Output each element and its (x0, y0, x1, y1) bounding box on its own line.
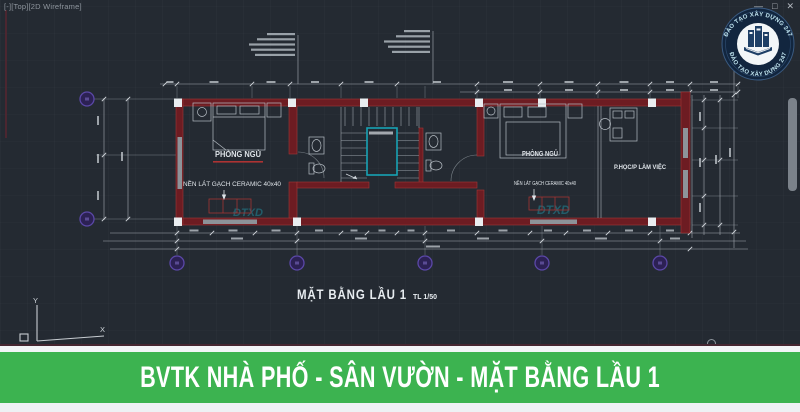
room-label-study: P.HỌC/P LÀM VIỆC (614, 162, 666, 171)
note-arrows (222, 189, 536, 201)
stair-void-label-smudge (369, 132, 393, 135)
grid-axis-bubbles (80, 92, 667, 270)
toilet-bowl (313, 164, 325, 173)
leader-note-text-blocks (249, 30, 430, 56)
floor-note-left: NỀN LÁT GẠCH CERAMIC 40x40 (183, 181, 282, 188)
watermarks: ĐTXD ĐTXD (233, 203, 570, 219)
lamp (487, 107, 495, 115)
bed-right (500, 104, 566, 158)
logo-svg: ĐÀO TẠO XÂY DỰNG 247 ĐÀO TẠO XÂY DỰNG 24… (719, 5, 797, 83)
door-swings (298, 152, 477, 181)
title-banner: BVTK NHÀ PHỐ - SÂN VƯỜN - MẶT BẰNG LẦU 1 (0, 352, 800, 403)
banner-title-text: BVTK NHÀ PHỐ - SÂN VƯỜN - MẶT BẰNG LẦU 1 (140, 361, 660, 395)
drawing-title: MẶT BẰNG LẦU 1 TL 1/50 (297, 287, 437, 302)
sink-basin (429, 136, 438, 148)
dimension-numbers-vertical (97, 112, 731, 212)
plan-title: MẶT BẰNG LẦU 1 (297, 287, 407, 302)
furniture (193, 103, 637, 174)
plan-scale: TL 1/50 (413, 292, 437, 301)
sink-basin (312, 140, 321, 152)
room-label-bedroom-right: PHÒNG NGỦ (522, 149, 558, 158)
stair-void (367, 128, 397, 175)
white-footer-strip (0, 403, 800, 412)
viewport-controls-label[interactable]: [-][Top][2D Wireframe] (4, 2, 82, 11)
logo-badge: ĐÀO TẠO XÂY DỰNG 247 ĐÀO TẠO XÂY DỰNG 24… (719, 5, 797, 88)
ucs-icon: Y X (8, 295, 118, 347)
dimension-lines (103, 31, 748, 249)
desk (610, 108, 637, 141)
ucs-x-label: X (100, 325, 105, 334)
bed-left (213, 103, 265, 150)
room-label-bedroom-left: PHÒNG NGỦ (215, 150, 261, 159)
toilet-bowl (430, 161, 442, 170)
ucs-y-label: Y (33, 296, 38, 305)
autocad-drawing-area[interactable]: [-][Top][2D Wireframe] — □ ✕ ĐÀO TẠO XÂY… (0, 0, 800, 412)
vertical-scrollbar-thumb[interactable] (788, 98, 797, 191)
stair-treads (341, 107, 419, 182)
floor-note-right: NỀN LÁT GẠCH CERAMIC 40x40 (514, 180, 576, 187)
lamp (198, 108, 207, 117)
label-underline (213, 161, 263, 163)
